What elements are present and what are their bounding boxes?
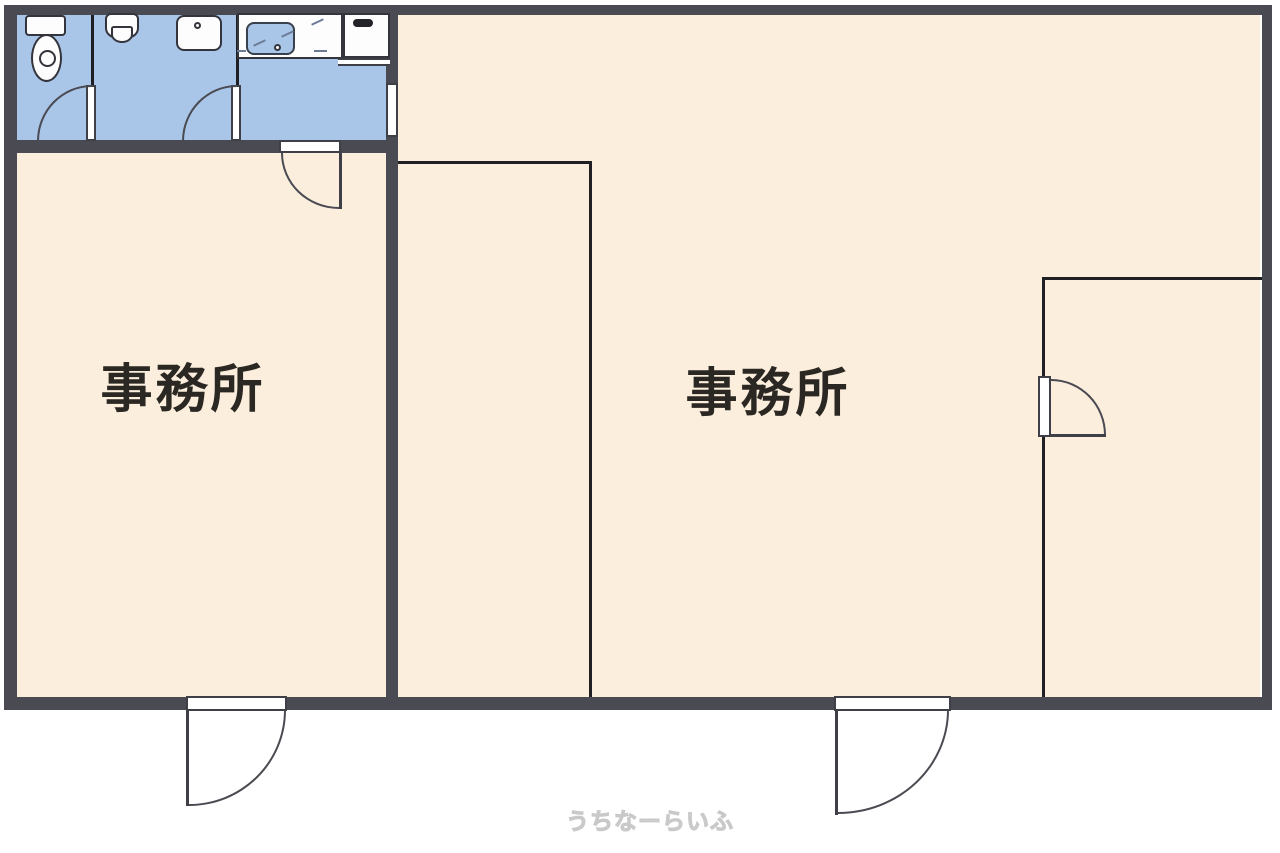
right-room-top-line (1045, 277, 1262, 280)
right-room-door-jamb (1038, 376, 1051, 437)
site-watermark: うちなーらいふ (555, 802, 745, 836)
right-room-left-line (1042, 277, 1045, 697)
floor-plan: 事務所 事務所 うちなーらいふ (0, 0, 1280, 853)
toilet-tank (25, 15, 66, 36)
washbasin (176, 15, 222, 51)
inner-area-right-line (589, 161, 592, 697)
wall-left (4, 5, 17, 710)
stove-burner (353, 19, 373, 27)
office-left-label: 事務所 (58, 364, 308, 416)
entrance-middle-door-leaf (835, 710, 838, 815)
kitchen-door-leaf (339, 153, 342, 209)
entrance-left-opening (186, 696, 287, 711)
right-room-door-leaf (1051, 434, 1106, 437)
toilet-bowl-center (39, 50, 56, 67)
counter-hatch-mark (237, 50, 246, 52)
wall-top (4, 5, 1272, 15)
inner-area-top-line (398, 161, 592, 164)
entrance-middle-door-arc (838, 710, 949, 814)
urinal-bowl (111, 26, 133, 43)
wall-right (1262, 5, 1272, 710)
entrance-left-door-leaf (186, 710, 189, 806)
kitchen-sink-faucet (274, 44, 281, 51)
office-right-label: 事務所 (638, 368, 898, 420)
entrance-middle-opening (834, 696, 951, 711)
office-right-floor (398, 14, 1260, 697)
office-left-floor (17, 152, 386, 697)
counter-hatch-mark (314, 50, 327, 52)
washbasin-faucet (194, 22, 201, 29)
counter-front-edge (338, 58, 390, 66)
kitchen-passage-opening (386, 83, 398, 137)
kitchen-door-opening (279, 140, 341, 153)
kitchen-sink (246, 22, 295, 55)
entrance-left-door-arc (189, 710, 286, 806)
partition-toilet (91, 15, 94, 87)
